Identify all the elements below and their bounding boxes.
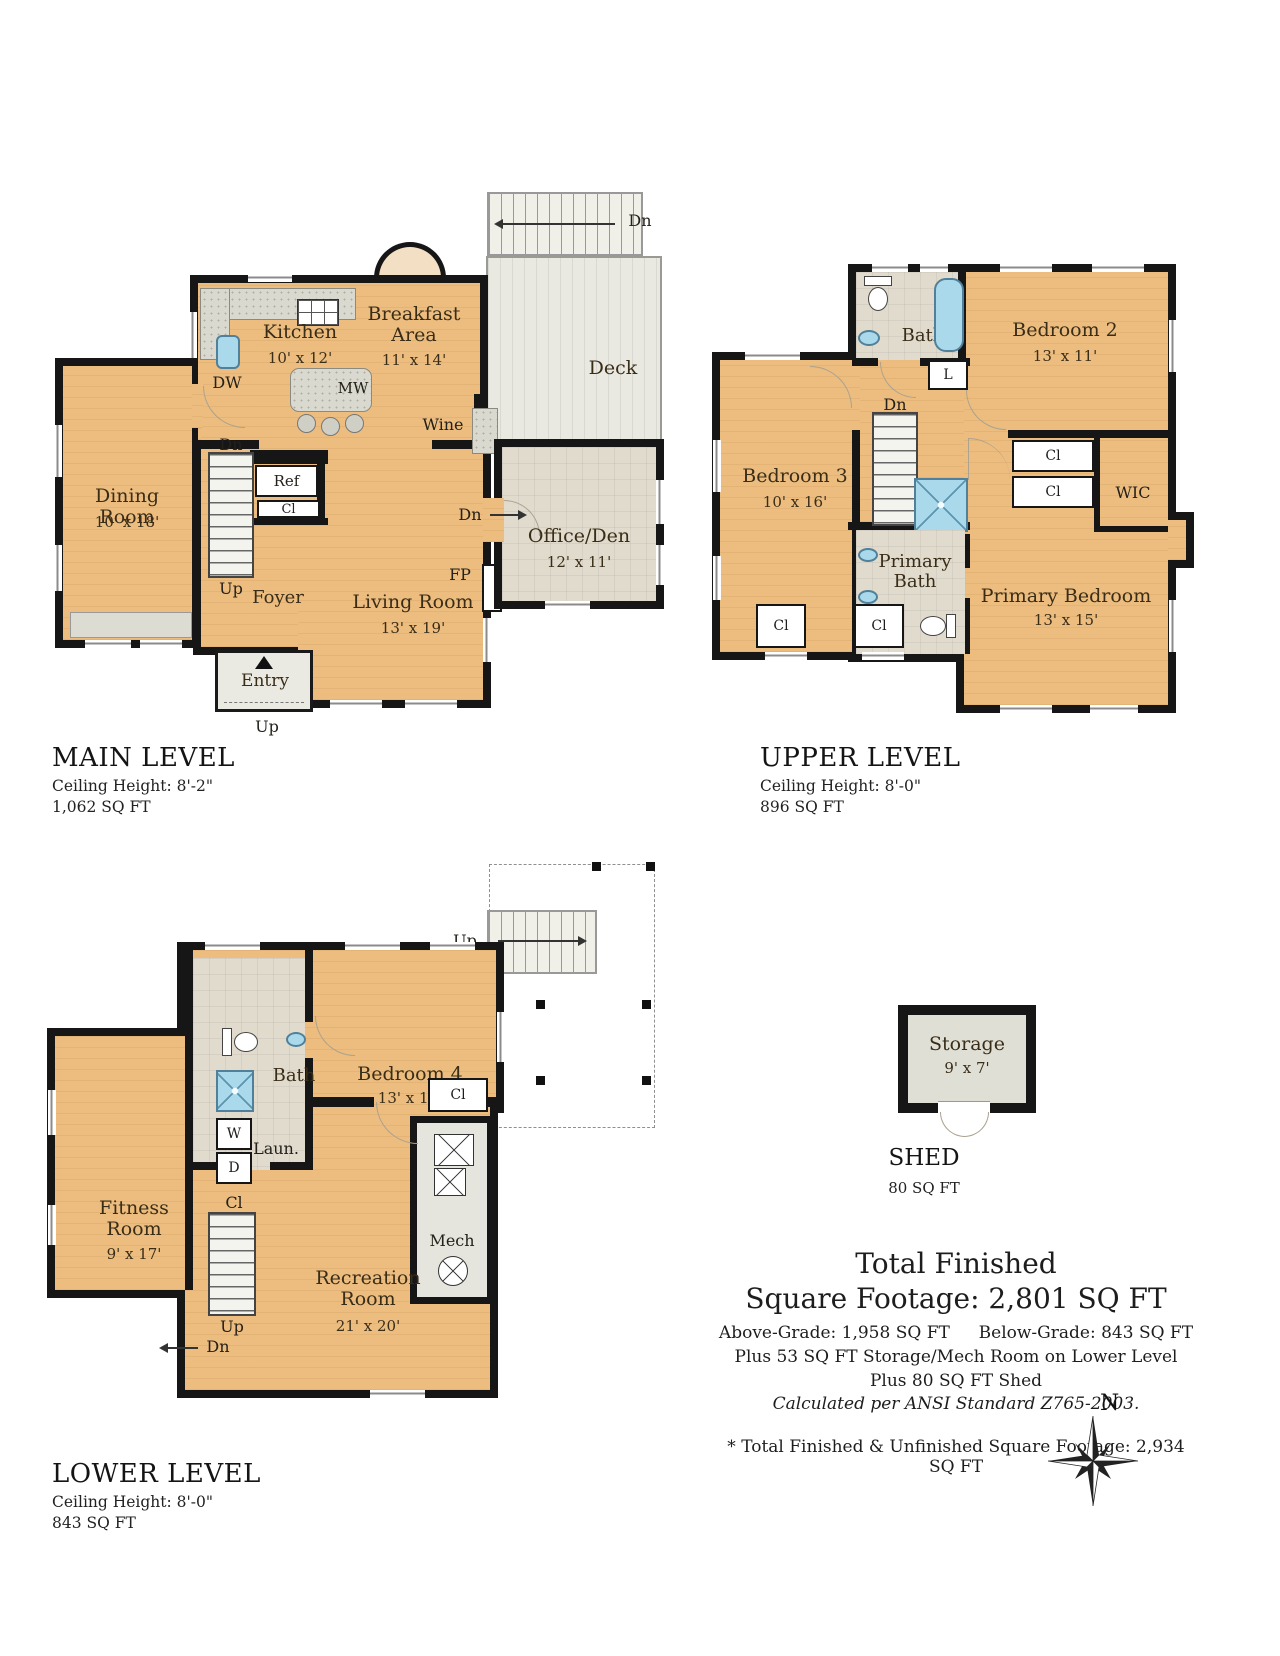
upper-level-ceiling: Ceiling Height: 8'-0" xyxy=(760,778,1060,795)
bedroom3-window-top xyxy=(745,352,800,360)
primary-wall-top xyxy=(1008,430,1168,438)
main-stairs xyxy=(208,452,254,578)
office-window-right-2 xyxy=(656,545,664,585)
primary-bath-label: Primary Bath xyxy=(872,552,958,592)
upper-stairs-dn-label: Dn xyxy=(872,396,918,414)
lower-window-top-3 xyxy=(430,942,475,950)
summary-title-line1: Total Finished xyxy=(716,1246,1196,1281)
mech-furnace-2 xyxy=(434,1168,466,1196)
upper-bath-tub xyxy=(934,278,964,352)
shed-area: 80 SQ FT xyxy=(854,1180,994,1197)
summary-grade-line: Above-Grade: 1,958 SQ FT Below-Grade: 84… xyxy=(716,1322,1196,1346)
microwave-label: MW xyxy=(333,380,373,397)
shed-title: SHED xyxy=(854,1146,994,1171)
upper-bath-toilet-tank xyxy=(864,276,892,286)
primary-bath-toilet-tank xyxy=(946,614,956,638)
kitchen-window-left xyxy=(189,312,197,358)
entry-label: Entry xyxy=(225,672,305,691)
main-level-title: MAIN LEVEL xyxy=(52,744,352,773)
upper-bath-sink xyxy=(858,330,880,346)
lower-window-top-2 xyxy=(345,942,400,950)
linen-closet-box: L xyxy=(928,360,968,390)
bedroom3-window-bottom-2 xyxy=(862,652,904,660)
bedroom2-window-top-2 xyxy=(1092,264,1144,272)
upper-bath-window-2 xyxy=(920,264,948,272)
bedroom3-closet-1: Cl xyxy=(756,604,806,648)
lower-bath-toilet-tank xyxy=(222,1028,232,1056)
refrigerator-box: Ref xyxy=(255,465,318,497)
ref-wall-bottom xyxy=(250,518,328,525)
entry-step-line xyxy=(224,702,304,703)
compass-rose-icon: N xyxy=(1038,1392,1148,1512)
primary-window-bottom-1 xyxy=(1000,705,1052,713)
upper-bath-toilet-bowl xyxy=(868,287,888,311)
kitchen-label: Kitchen xyxy=(250,322,350,343)
living-window-bottom-1 xyxy=(330,700,382,708)
deck-stairs-arrow-line xyxy=(503,223,615,225)
upper-bath-wall-left xyxy=(852,358,878,366)
kitchen-sink xyxy=(216,335,240,369)
lower-bath-toilet-bowl xyxy=(234,1032,258,1052)
dining-dims: 10' x 18' xyxy=(67,514,187,531)
breakfast-label: Breakfast Area xyxy=(362,304,466,346)
lower-bath-label: Bath xyxy=(262,1066,326,1086)
foyer-label: Foyer xyxy=(247,588,309,608)
lower-dn-arrow-head xyxy=(159,1343,168,1353)
lower-level-title: LOWER LEVEL xyxy=(52,1460,352,1489)
deck-stairs-arrow-head xyxy=(494,219,503,229)
living-window-right xyxy=(483,618,491,662)
deck-post-5 xyxy=(536,1076,545,1085)
summary-storage-line: Plus 53 SQ FT Storage/Mech Room on Lower… xyxy=(716,1346,1196,1370)
primary-window-right xyxy=(1169,600,1177,652)
bedroom2-window-right xyxy=(1169,320,1177,372)
fitness-dims: 9' x 17' xyxy=(84,1246,184,1263)
primary-window-bottom-2 xyxy=(1090,705,1138,713)
kitchen-window-top xyxy=(248,274,292,282)
foyer-closet-box: Cl xyxy=(257,500,320,518)
shed-door-arc-2 xyxy=(964,1112,989,1137)
primary-bump-floor xyxy=(1168,520,1186,560)
deck-label: Deck xyxy=(553,358,673,379)
primary-bath-toilet-bowl xyxy=(920,616,946,636)
bedroom3-closet-2: Cl xyxy=(854,604,904,648)
wine-label: Wine xyxy=(418,416,468,434)
mech-label: Mech xyxy=(418,1232,486,1250)
lower-window-top-1 xyxy=(205,942,260,950)
bedroom2-dims: 13' x 11' xyxy=(995,348,1135,365)
bedroom2-label: Bedroom 2 xyxy=(995,320,1135,341)
wic-wall-bottom xyxy=(1100,526,1168,532)
lower-dn-arrow-line xyxy=(168,1347,198,1349)
bedroom2-window-top-1 xyxy=(1000,264,1052,272)
deck-footprint-dashed xyxy=(489,864,655,1128)
bedroom3-dims: 10' x 16' xyxy=(720,494,870,511)
lower-stairs-up-label: Up xyxy=(210,1318,254,1336)
fireplace-label: FP xyxy=(442,566,478,584)
dining-window-bottom-2 xyxy=(140,640,182,648)
washer-box: W xyxy=(216,1118,252,1150)
lower-stairs-closet-label: Cl xyxy=(213,1194,255,1212)
lower-shower xyxy=(216,1070,254,1112)
recreation-window-bottom xyxy=(370,1390,425,1398)
living-window-bottom-2 xyxy=(405,700,457,708)
office-dn-label: Dn xyxy=(452,506,488,524)
office-dn-arrow-line xyxy=(490,514,518,516)
dryer-box: D xyxy=(216,1152,252,1184)
fitness-window-left-1 xyxy=(48,1090,56,1135)
island-stool-1 xyxy=(297,414,316,433)
upper-level-title: UPPER LEVEL xyxy=(760,744,1060,773)
floor-plan-page: Dn Deck Dn Up Ref Cl DW MW Wine Kitchen … xyxy=(0,0,1280,1656)
summary-above-grade: Above-Grade: 1,958 SQ FT xyxy=(719,1323,950,1343)
shed-storage-dims: 9' x 7' xyxy=(908,1060,1026,1077)
dining-window-bottom-1 xyxy=(85,640,131,648)
shed-storage-label: Storage xyxy=(908,1034,1026,1055)
deck-post-1 xyxy=(592,862,601,871)
lower-ext-stairs-arrow-line xyxy=(498,940,578,942)
living-lower-floor xyxy=(298,600,483,700)
entry-arrow xyxy=(255,656,273,669)
lower-ext-stairs-arrow-head xyxy=(578,936,587,946)
lower-level-ceiling: Ceiling Height: 8'-0" xyxy=(52,1494,352,1511)
deck-floor xyxy=(486,256,662,446)
upper-level-area: 896 SQ FT xyxy=(760,799,1060,816)
bedroom4-closet: Cl xyxy=(428,1078,488,1112)
upper-shower xyxy=(914,478,968,532)
shed-door-arc-1 xyxy=(940,1112,965,1137)
dining-window-left-2 xyxy=(54,545,62,591)
bedroom3-window-left-1 xyxy=(713,440,721,492)
office-label: Office/Den xyxy=(499,526,659,547)
office-dims: 12' x 11' xyxy=(499,554,659,571)
dining-window-left-1 xyxy=(54,425,62,477)
office-window-right-1 xyxy=(656,480,664,524)
laundry-label: Laun. xyxy=(248,1140,304,1158)
primary-closet-1: Cl xyxy=(1012,440,1094,472)
kitchen-dims: 10' x 12' xyxy=(250,350,350,367)
wic-wall-left xyxy=(1094,436,1100,532)
bedroom3-window-left-2 xyxy=(713,556,721,600)
deck-post-4 xyxy=(642,1000,651,1009)
lower-stairs xyxy=(208,1212,256,1316)
mech-furnace-1 xyxy=(434,1134,474,1166)
bedroom3-label: Bedroom 3 xyxy=(720,466,870,487)
laundry-wall-bottom-2 xyxy=(270,1162,305,1170)
primary-bath-sink-2 xyxy=(858,590,878,604)
lower-stairs-dn-label: Dn xyxy=(198,1338,238,1356)
entry-up-label: Up xyxy=(249,718,285,736)
dining-window-seat xyxy=(70,612,192,638)
upper-stairs xyxy=(872,412,918,526)
deck-post-3 xyxy=(536,1000,545,1009)
primary-closet-2: Cl xyxy=(1012,476,1094,508)
deck-stairs-dn-label: Dn xyxy=(620,212,660,230)
bedroom4-window-right xyxy=(497,1012,505,1062)
main-stairs-dn-label: Dn xyxy=(208,436,254,454)
deck-post-2 xyxy=(646,862,655,871)
breakfast-dims: 11' x 14' xyxy=(362,352,466,369)
dining-door-opening xyxy=(192,384,203,428)
fitness-window-left-2 xyxy=(48,1205,56,1245)
bedroom3-window-bottom-1 xyxy=(765,652,807,660)
upper-bath-window-1 xyxy=(872,264,908,272)
compass-rose: N xyxy=(1038,1392,1148,1512)
lower-bath-sink xyxy=(286,1032,306,1047)
summary-shed-line: Plus 80 SQ FT Shed xyxy=(716,1370,1196,1394)
island-stool-2 xyxy=(321,417,340,436)
living-label: Living Room xyxy=(343,592,483,613)
lower-level-area: 843 SQ FT xyxy=(52,1515,352,1532)
primary-bedroom-label: Primary Bedroom xyxy=(976,586,1156,607)
fitness-wall-right xyxy=(185,950,193,1290)
main-level-area: 1,062 SQ FT xyxy=(52,799,352,816)
summary-title-line2: Square Footage: 2,801 SQ FT xyxy=(716,1281,1196,1316)
compass-north-label: N xyxy=(1100,1392,1119,1416)
summary-below-grade: Below-Grade: 843 SQ FT xyxy=(979,1323,1193,1343)
primary-bath-sink-1 xyxy=(858,548,878,562)
living-dims: 13' x 19' xyxy=(343,620,483,637)
office-dn-arrow-head xyxy=(518,510,527,520)
office-window-bottom xyxy=(545,601,590,609)
main-level-ceiling: Ceiling Height: 8'-2" xyxy=(52,778,352,795)
island-stool-3 xyxy=(345,414,364,433)
fitness-label: Fitness Room xyxy=(84,1198,184,1240)
primary-bedroom-dims: 13' x 15' xyxy=(976,612,1156,629)
deck-post-6 xyxy=(642,1076,651,1085)
recreation-label: Recreation Room xyxy=(288,1268,448,1310)
lower-bath-wall-right-1 xyxy=(305,950,313,1022)
wic-label: WIC xyxy=(1102,484,1164,502)
recreation-dims: 21' x 20' xyxy=(288,1318,448,1335)
